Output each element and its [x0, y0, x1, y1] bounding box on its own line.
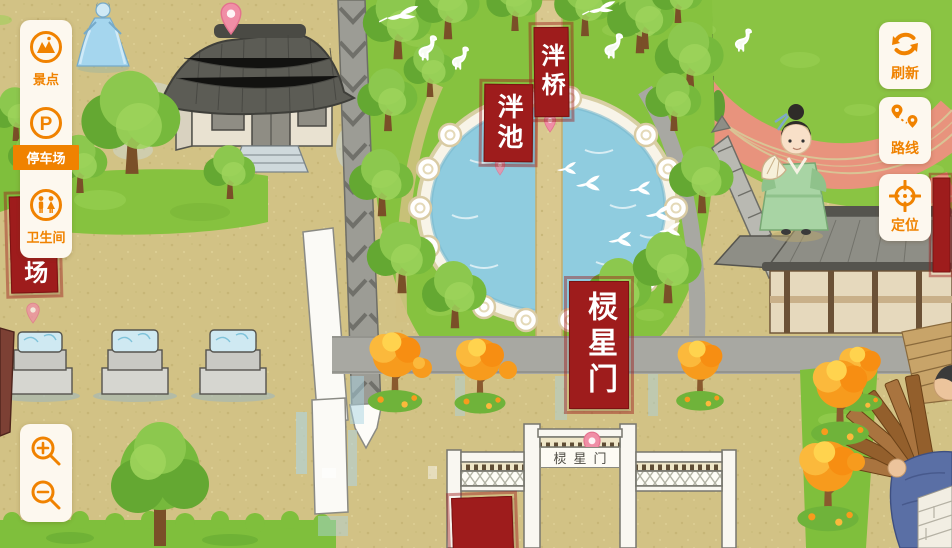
sidebar-item-label: 景点	[33, 69, 59, 88]
zoom-controls	[20, 424, 72, 522]
locate-icon	[889, 180, 921, 212]
route-label: 路线	[891, 138, 919, 158]
illustrated-map-canvas[interactable]	[0, 0, 952, 548]
poi-banner-pan-pond[interactable]: 泮池	[484, 84, 534, 163]
scenic-map-app: 泮池 泮桥 棂星门 场 棂星门 景点 P 停车场 卫生间	[0, 0, 952, 548]
scenic-spots-icon	[28, 29, 64, 65]
poi-banner-lingxing-gate[interactable]: 棂星门	[569, 281, 629, 409]
svg-text:P: P	[40, 114, 53, 135]
poi-banner-pan-bridge[interactable]: 泮桥	[534, 27, 570, 117]
sidebar-item-label: 卫生间	[26, 227, 65, 246]
route-icon	[889, 103, 921, 135]
route-button[interactable]: 路线	[879, 97, 931, 164]
gate-plaque: 棂星门	[540, 447, 620, 468]
poi-banner-bottom-partial[interactable]	[451, 496, 514, 548]
refresh-button[interactable]: 刷新	[879, 22, 931, 89]
zoom-in-button magnifier-plus-icon[interactable]	[29, 434, 63, 468]
sidebar-item-scenic-spots[interactable]: 景点	[28, 29, 64, 88]
refresh-label: 刷新	[891, 63, 919, 83]
restroom-icon	[28, 187, 64, 223]
sidebar: 景点 P 停车场 卫生间	[20, 20, 72, 258]
locate-label: 定位	[891, 215, 919, 235]
sidebar-item-label-active: 停车场	[13, 145, 79, 170]
refresh-icon	[889, 28, 921, 60]
sidebar-item-restroom[interactable]: 卫生间	[26, 187, 65, 246]
sidebar-item-parking[interactable]: P 停车场	[27, 105, 65, 170]
right-edge-banner	[930, 174, 952, 276]
parking-icon: P	[28, 105, 64, 141]
locate-button[interactable]: 定位	[879, 174, 931, 241]
zoom-out-button magnifier-minus-icon[interactable]	[29, 478, 63, 512]
